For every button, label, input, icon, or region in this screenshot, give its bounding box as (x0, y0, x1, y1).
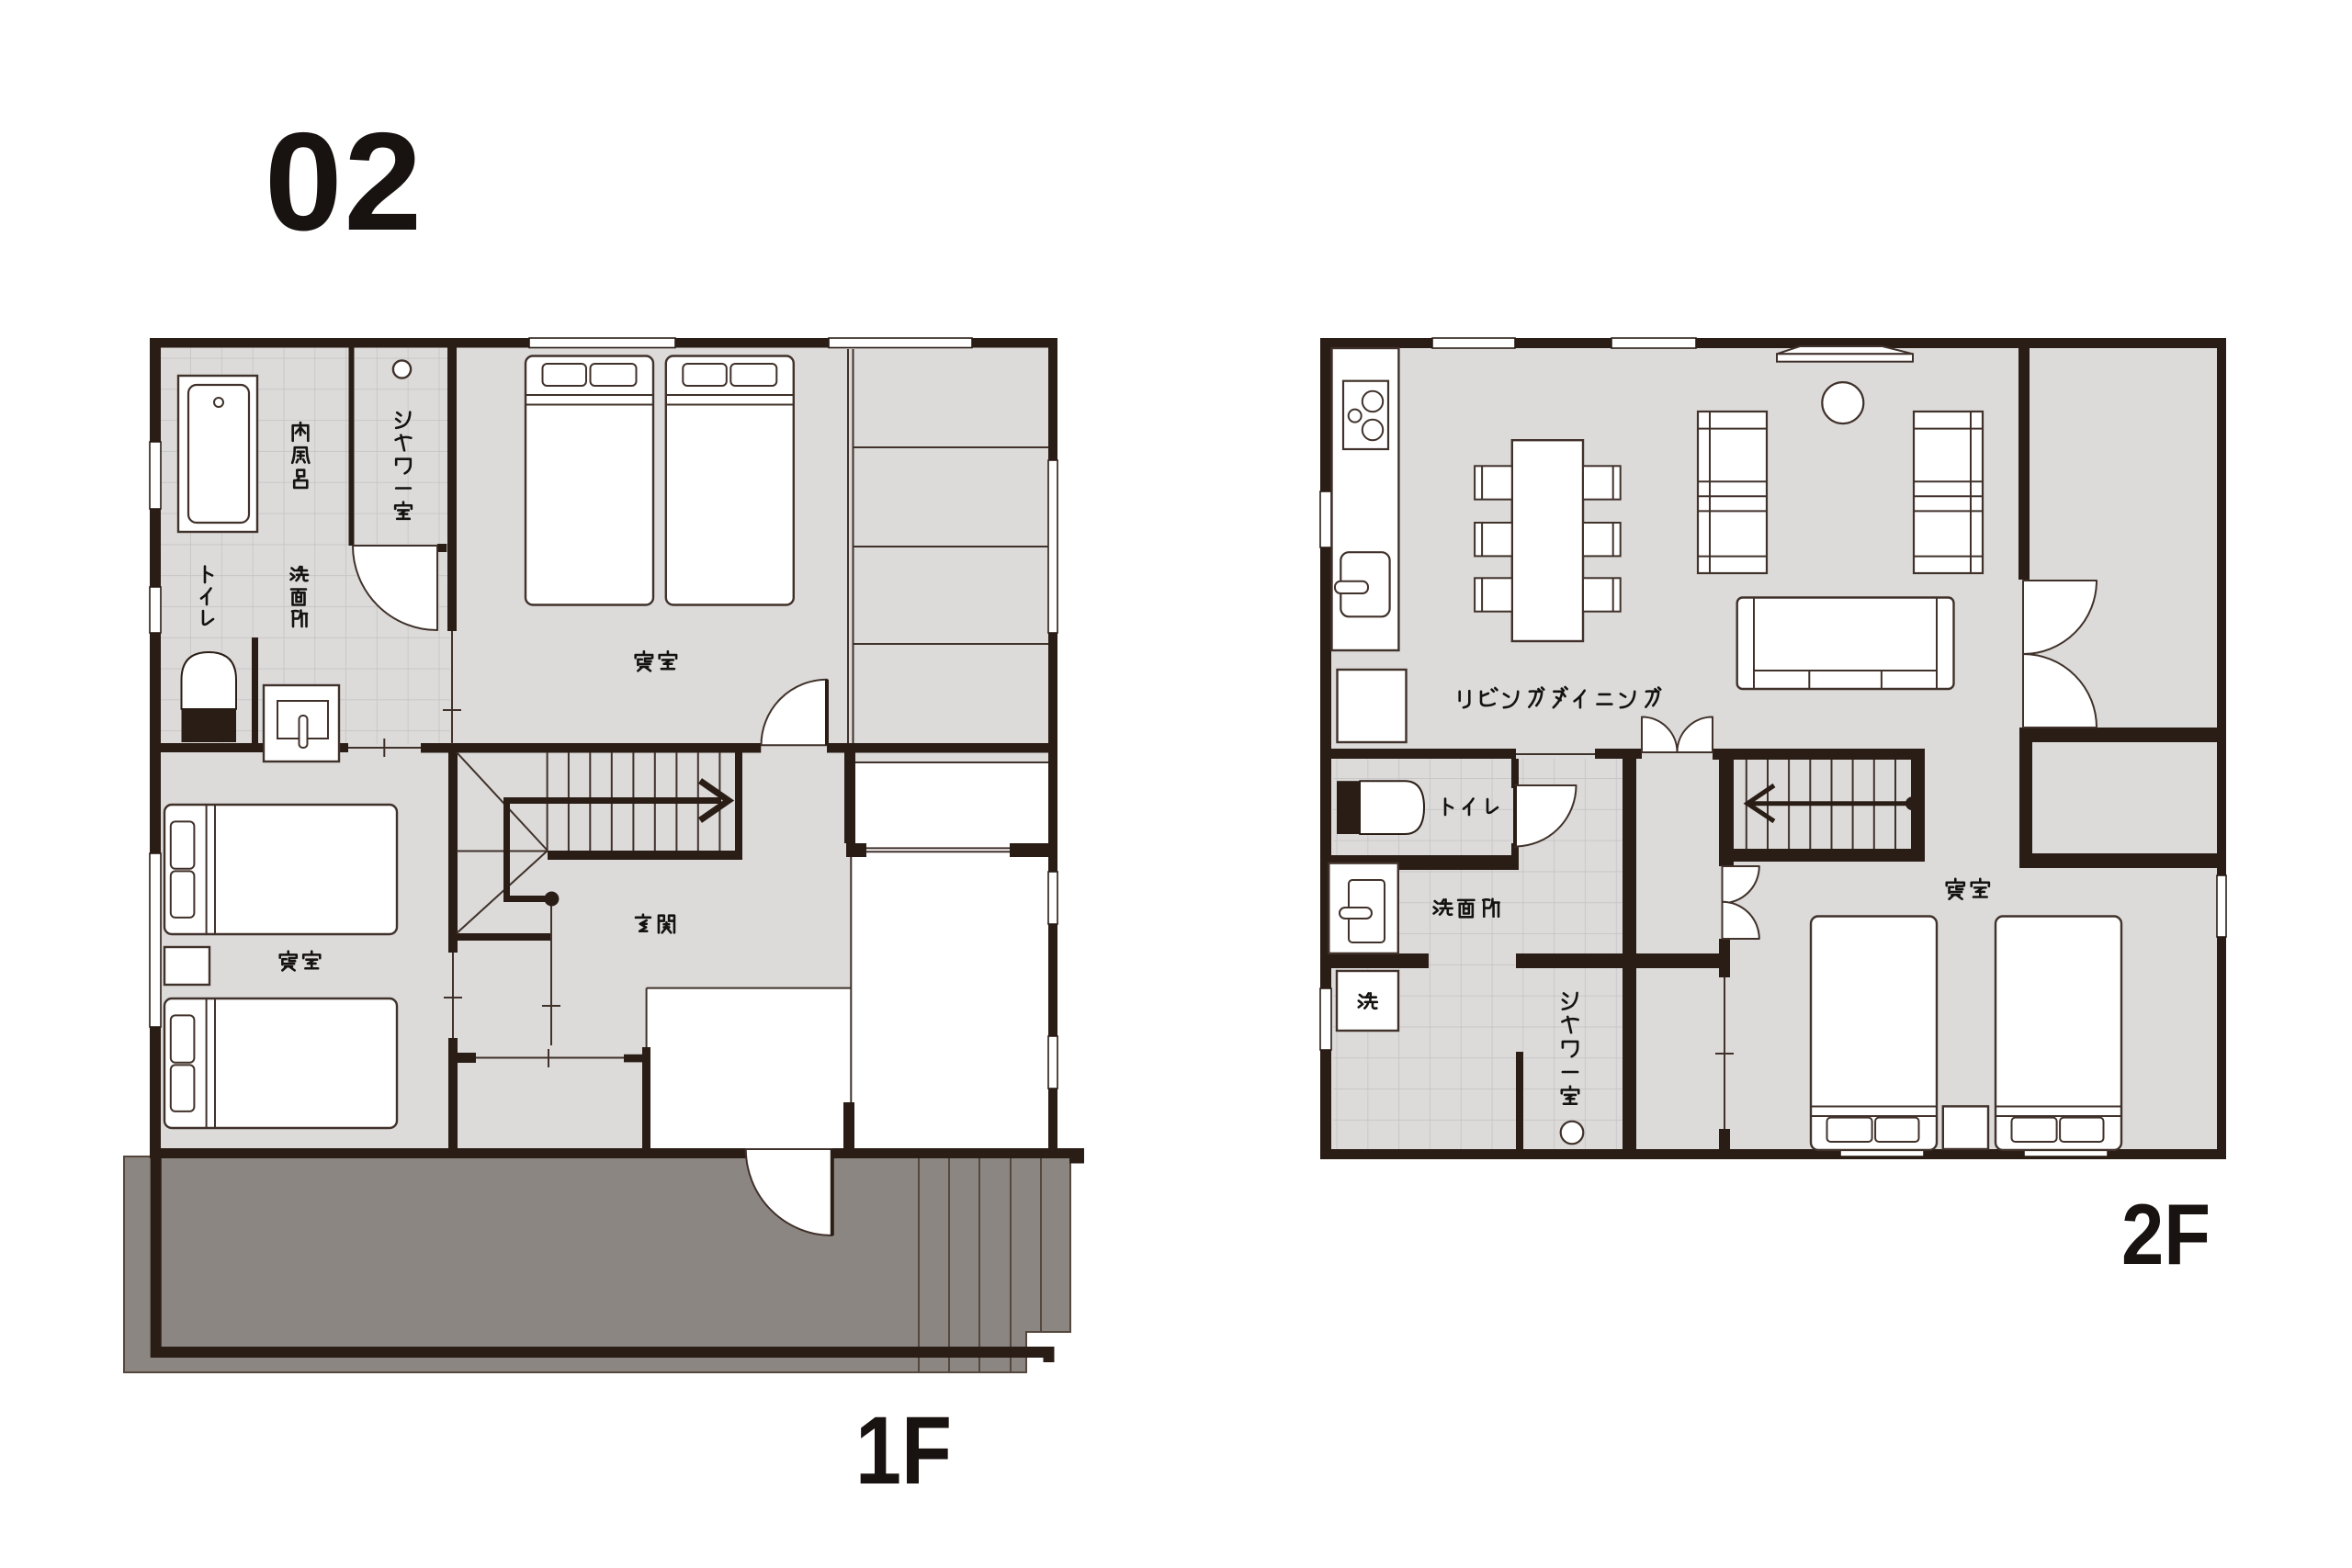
svg-text:2F: 2F (2121, 1186, 2211, 1282)
svg-text:1F: 1F (855, 1397, 952, 1505)
svg-text:02: 02 (265, 104, 424, 260)
